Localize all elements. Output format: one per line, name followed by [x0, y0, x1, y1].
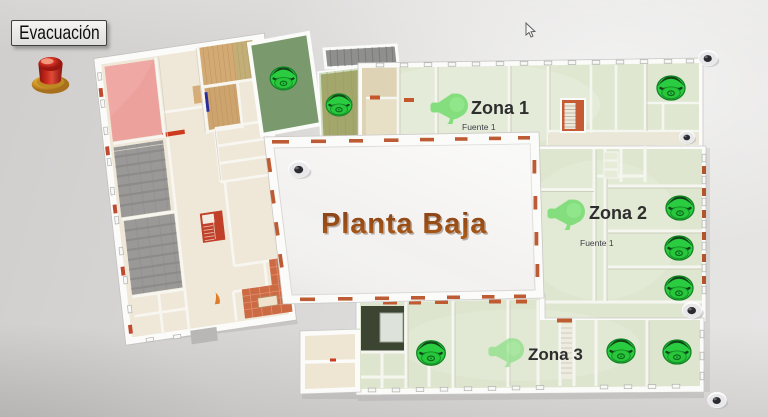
svg-text:Fuente 1: Fuente 1 — [580, 238, 614, 248]
svg-text:Planta Baja: Planta Baja — [321, 208, 487, 240]
svg-text:Fuente 1: Fuente 1 — [462, 122, 496, 132]
svg-text:Zona 1: Zona 1 — [471, 98, 529, 118]
svg-text:Zona 3: Zona 3 — [528, 345, 583, 364]
svg-text:Zona 2: Zona 2 — [589, 203, 647, 223]
